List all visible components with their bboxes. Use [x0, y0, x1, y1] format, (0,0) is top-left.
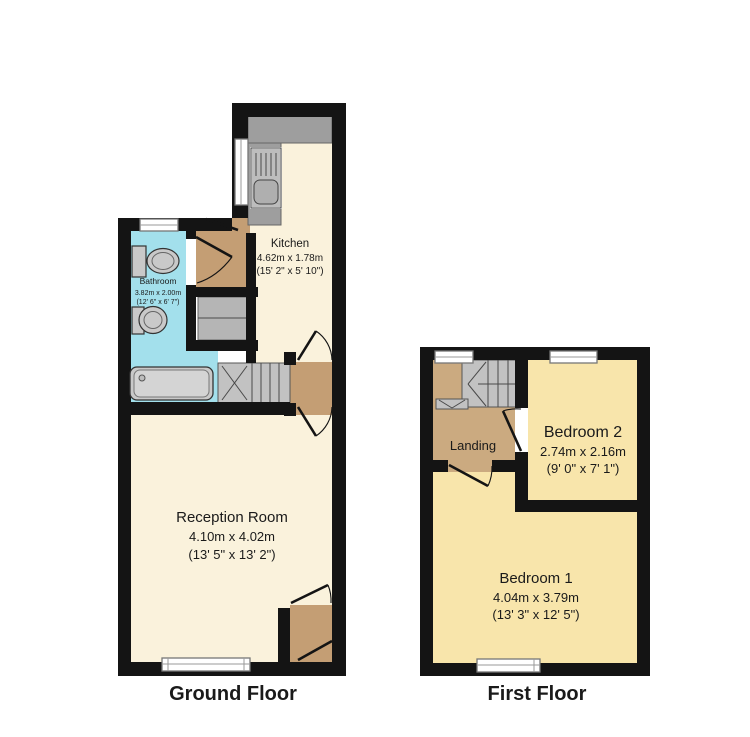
- bedroom2-name: Bedroom 2: [544, 424, 622, 441]
- bathroom-metric: 3.82m x 2.00m: [135, 290, 181, 297]
- first-floor-title: First Floor: [488, 683, 587, 705]
- wall: [232, 103, 346, 117]
- wall: [246, 233, 256, 363]
- window: [235, 139, 248, 205]
- kitchen-metric: 4.62m x 1.78m: [257, 253, 323, 264]
- window: [162, 658, 250, 671]
- bathroom-imperial: (12' 6" x 6' 7"): [136, 299, 179, 306]
- label-bedroom2: Bedroom 2 2.74m x 2.16m (9' 0" x 7' 1"): [540, 424, 626, 476]
- window: [550, 351, 597, 363]
- bedroom1-imperial: (13' 3" x 12' 5"): [492, 607, 579, 622]
- reception-imperial: (13' 5" x 13' 2"): [188, 547, 275, 562]
- wall: [332, 103, 346, 676]
- staircase-ground: [218, 363, 290, 403]
- basin-icon: [132, 307, 167, 335]
- wall: [118, 402, 290, 415]
- ground-floor-title: Ground Floor: [169, 683, 297, 705]
- window: [140, 219, 178, 231]
- wall: [278, 608, 290, 662]
- wall: [492, 460, 520, 472]
- bedroom1-metric: 4.04m x 3.79m: [493, 590, 579, 605]
- wall: [284, 352, 296, 365]
- wall: [515, 347, 528, 408]
- first-floor-plan: Landing Bedroom 2 2.74m x 2.16m (9' 0" x…: [420, 347, 650, 705]
- stair-hall-floor: [290, 362, 334, 415]
- reception-name: Reception Room: [176, 509, 288, 526]
- landing-name: Landing: [450, 438, 496, 453]
- wall: [420, 347, 433, 676]
- window: [435, 351, 473, 363]
- bedroom2-imperial: (9' 0" x 7' 1"): [547, 461, 620, 476]
- label-bedroom1: Bedroom 1 4.04m x 3.79m (13' 3" x 12' 5"…: [492, 570, 579, 622]
- bedroom2-metric: 2.74m x 2.16m: [540, 444, 626, 459]
- wall: [186, 231, 196, 239]
- label-bathroom: Bathroom 3.82m x 2.00m (12' 6" x 6' 7"): [135, 276, 181, 306]
- bathtub-icon: [130, 367, 213, 400]
- bedroom1-name: Bedroom 1: [499, 570, 572, 587]
- kitchen-imperial: (15' 2" x 5' 10"): [256, 266, 323, 277]
- floorplan-drawing: Kitchen 4.62m x 1.78m (15' 2" x 5' 10") …: [0, 0, 750, 737]
- ground-floor-plan: Kitchen 4.62m x 1.78m (15' 2" x 5' 10") …: [118, 103, 346, 705]
- front-door-gap: [296, 662, 332, 676]
- kitchen-name: Kitchen: [271, 238, 309, 250]
- wall: [284, 403, 296, 416]
- wall: [515, 500, 650, 512]
- cupboard: [198, 297, 248, 340]
- kitchen-sink-icon: [251, 148, 281, 208]
- wall: [420, 460, 448, 472]
- bathroom-name: Bathroom: [140, 276, 177, 286]
- reception-metric: 4.10m x 4.02m: [189, 529, 275, 544]
- floorplan-canvas: Kitchen 4.62m x 1.78m (15' 2" x 5' 10") …: [0, 0, 750, 737]
- label-reception: Reception Room 4.10m x 4.02m (13' 5" x 1…: [176, 509, 288, 562]
- wall: [118, 218, 131, 676]
- window: [477, 659, 540, 672]
